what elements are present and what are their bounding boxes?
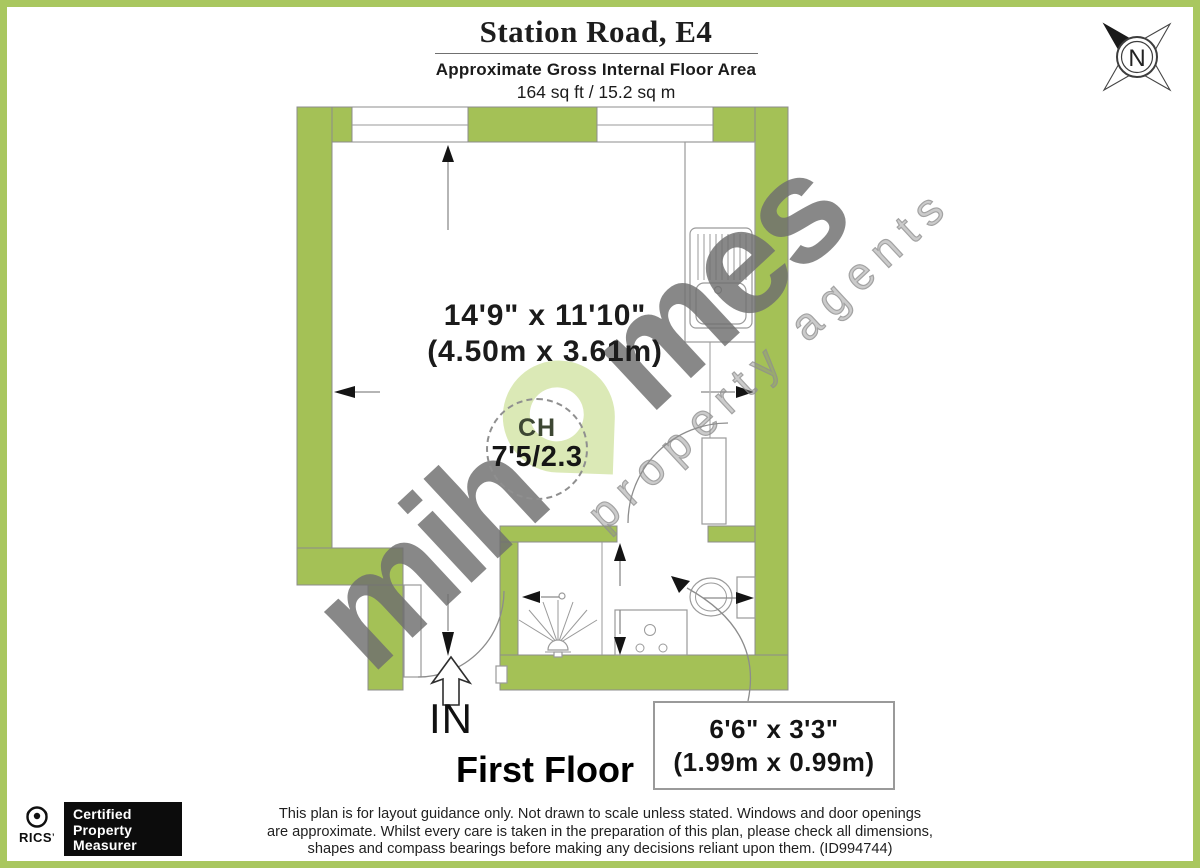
- ceiling-height-badge: CH 7'5/2.3: [486, 398, 588, 500]
- header-sub: Approximate Gross Internal Floor Area 16…: [396, 53, 796, 103]
- shower-icon: [519, 542, 602, 657]
- room-dimensions-label: 14'9" x 11'10" (4.50m x 3.61m): [365, 298, 725, 370]
- bathroom-dims-metric: (1.99m x 0.99m): [655, 746, 893, 779]
- floor-name-label: First Floor: [395, 749, 695, 791]
- disclaimer-text: This plan is for layout guidance only. N…: [250, 806, 950, 859]
- toilet-icon: [690, 577, 755, 618]
- certification-line: Property: [73, 823, 182, 839]
- room-dims-imperial: 14'9" x 11'10": [365, 298, 725, 334]
- bathroom-measure-arrows: [614, 543, 626, 655]
- disclaimer-line: are approximate. Whilst every care is ta…: [250, 824, 950, 842]
- header: Station Road, E4: [396, 0, 796, 50]
- compass-icon: N: [1104, 24, 1170, 90]
- certification-line: Certified: [73, 807, 182, 823]
- bathroom-dims-imperial: 6'6" x 3'3": [655, 713, 893, 746]
- disclaimer-line: This plan is for layout guidance only. N…: [250, 806, 950, 824]
- floor-area-value: 164 sq ft / 15.2 sq m: [396, 82, 796, 103]
- compass-north-label: N: [1128, 45, 1145, 72]
- certified-property-measurer-badge: Certified Property Measurer: [64, 802, 182, 856]
- ceiling-height-label: CH: [488, 415, 586, 441]
- floorplan-page: Station Road, E4 Approximate Gross Inter…: [0, 0, 1200, 868]
- entrance-label: IN: [429, 695, 473, 743]
- certification-line: Measurer: [73, 838, 182, 854]
- rics-wordmark: RICS’: [19, 831, 55, 844]
- rics-lion-icon: [22, 805, 52, 831]
- page-title: Station Road, E4: [396, 14, 796, 50]
- floor-area-heading: Approximate Gross Internal Floor Area: [396, 60, 796, 80]
- disclaimer-line: shapes and compass bearings before makin…: [250, 841, 950, 859]
- floorplan-drawing: N: [0, 0, 1200, 868]
- rics-logo: RICS’: [14, 802, 60, 856]
- room-dims-metric: (4.50m x 3.61m): [365, 334, 725, 370]
- vanity-basin-icon: [615, 610, 687, 655]
- bathroom-dimensions-callout: 6'6" x 3'3" (1.99m x 0.99m): [653, 701, 895, 790]
- ceiling-height-value: 7'5/2.3: [488, 441, 586, 474]
